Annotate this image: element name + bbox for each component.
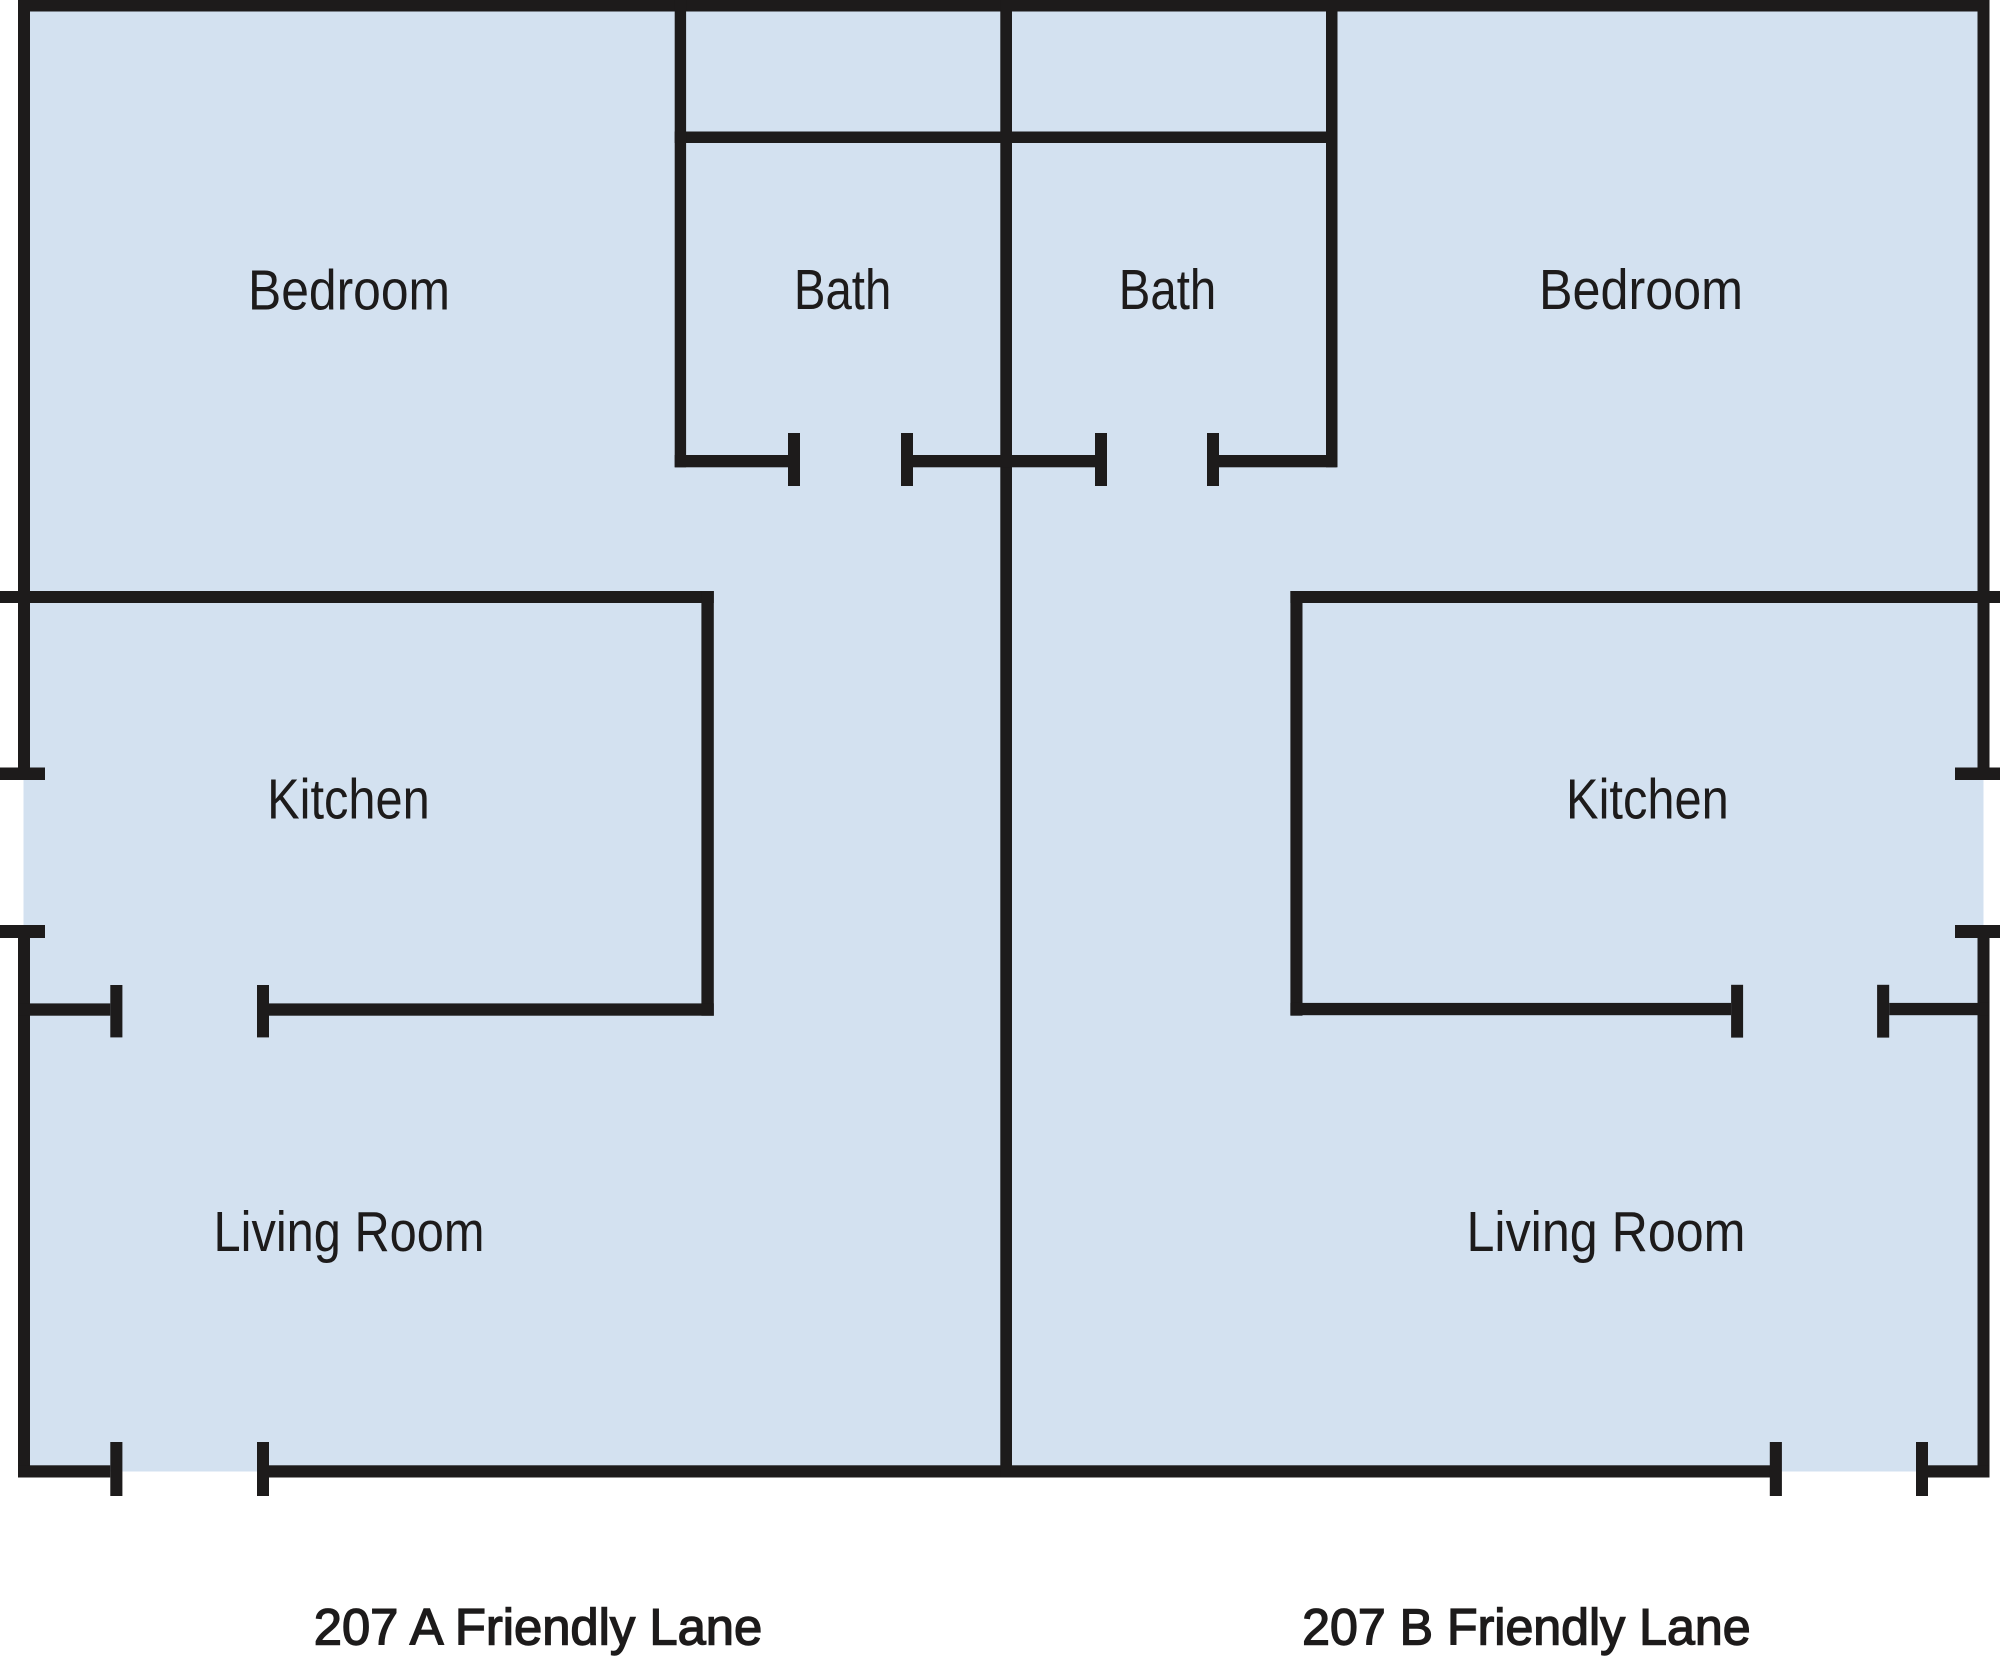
svg-text:Bath: Bath — [794, 258, 891, 322]
svg-text:207 A Friendly Lane: 207 A Friendly Lane — [314, 1599, 763, 1656]
svg-text:Kitchen: Kitchen — [267, 767, 430, 831]
svg-text:Kitchen: Kitchen — [1566, 767, 1729, 831]
svg-text:Living Room: Living Room — [214, 1200, 485, 1264]
svg-text:Bedroom: Bedroom — [248, 259, 450, 323]
svg-text:Bedroom: Bedroom — [1539, 258, 1743, 322]
svg-text:Living Room: Living Room — [1467, 1200, 1746, 1264]
svg-text:207 B Friendly Lane: 207 B Friendly Lane — [1302, 1599, 1751, 1656]
svg-text:Bath: Bath — [1119, 258, 1216, 322]
